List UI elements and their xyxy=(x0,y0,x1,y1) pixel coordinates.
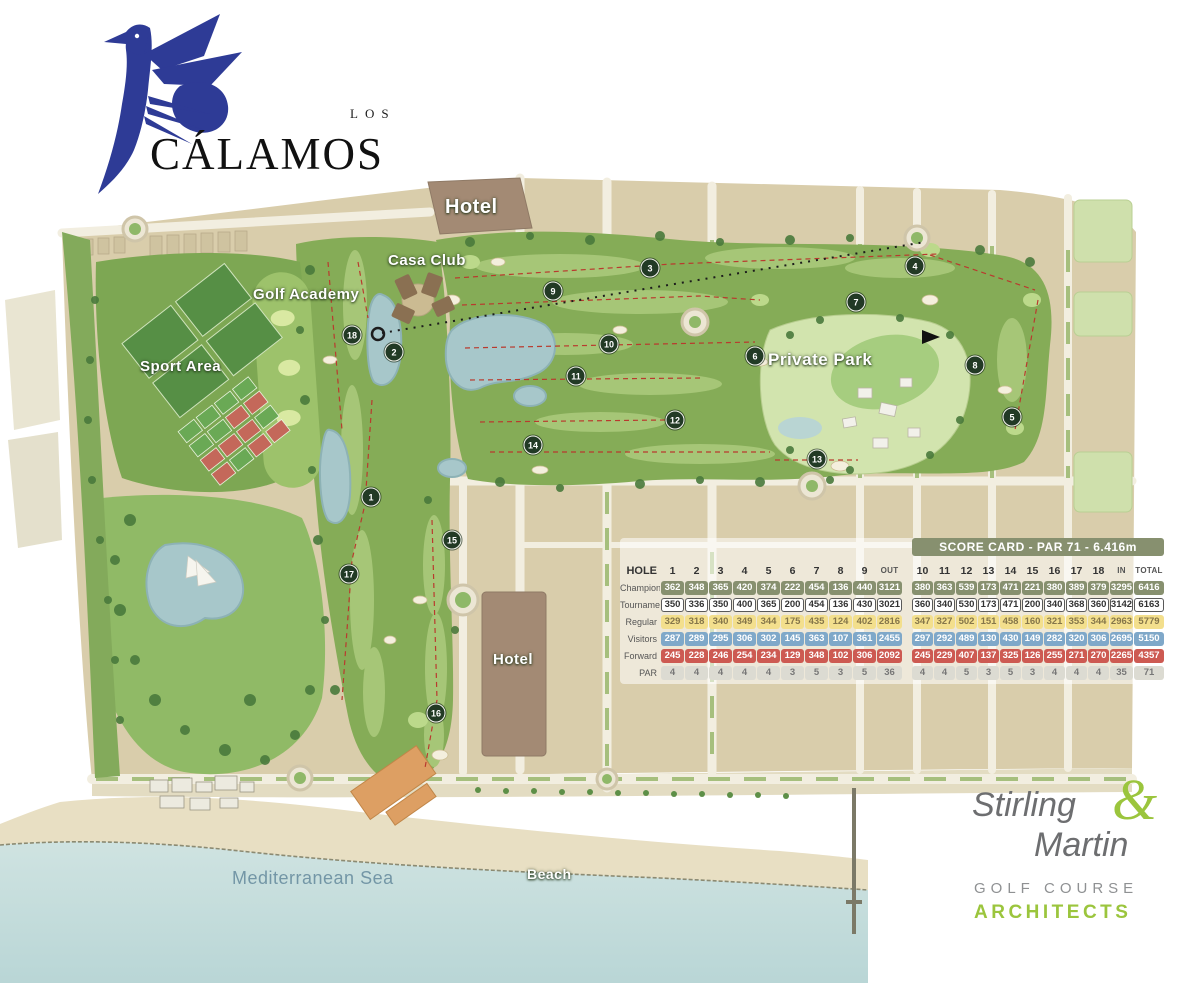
scorecard-cell: 149 xyxy=(1022,632,1043,646)
scorecard-cell: 360 xyxy=(1088,598,1109,612)
scorecard-cell: 124 xyxy=(829,615,852,629)
resort-logo: LOS CÁLAMOS xyxy=(88,6,418,191)
scorecard-cell: 539 xyxy=(956,581,977,595)
scorecard-hole-number: 8 xyxy=(829,564,852,578)
scorecard-cell: 245 xyxy=(661,649,684,663)
hole-marker-10: 10 xyxy=(600,335,619,354)
scorecard-hole-number: 12 xyxy=(956,564,977,578)
scorecard-cell: 306 xyxy=(853,649,876,663)
scorecard-cell: 407 xyxy=(956,649,977,663)
ampersand-glyph: & xyxy=(1112,766,1157,833)
scorecard-hole-number: 6 xyxy=(781,564,804,578)
scorecard-title: SCORE CARD - PAR 71 - 6.416m xyxy=(912,538,1164,556)
scorecard-cell xyxy=(903,581,911,595)
scorecard-hole-number: 4 xyxy=(733,564,756,578)
scorecard-cell: 471 xyxy=(1000,598,1021,612)
hole-marker-1: 1 xyxy=(362,488,381,507)
hole-marker-6: 6 xyxy=(746,347,765,366)
scorecard-total-value: 6416 xyxy=(1134,581,1164,595)
scorecard-in-value: 2963 xyxy=(1110,615,1133,629)
scorecard-row-label: Regular xyxy=(620,615,660,629)
scorecard-cell: 430 xyxy=(1000,632,1021,646)
scorecard-cell: 502 xyxy=(956,615,977,629)
scorecard-total-value: 4357 xyxy=(1134,649,1164,663)
scorecard-cell: 4 xyxy=(934,666,955,680)
architects-logo: Stirling & Martin GOLF COURSE ARCHITECTS xyxy=(972,778,1172,923)
masterplan: LOS CÁLAMOS Hotel Casa Club Golf Academy… xyxy=(0,0,1200,983)
scorecard-cell: 107 xyxy=(829,632,852,646)
scorecard-cell: 306 xyxy=(1088,632,1109,646)
scorecard-cell: 360 xyxy=(912,598,933,612)
scorecard-cell: 471 xyxy=(1000,581,1021,595)
scorecard-cell: 129 xyxy=(781,649,804,663)
scorecard-hole-number: 11 xyxy=(934,564,955,578)
scorecard-row-label: PAR xyxy=(620,666,660,680)
scorecard-cell: 350 xyxy=(709,598,732,612)
scorecard-cell: 454 xyxy=(805,598,828,612)
scorecard-cell xyxy=(903,615,911,629)
scorecard-cell: 130 xyxy=(978,632,999,646)
scorecard-out-value: 3121 xyxy=(877,581,902,595)
label-casa-club: Casa Club xyxy=(388,252,466,269)
scorecard-in-value: 35 xyxy=(1110,666,1133,680)
scorecard-in-value: 2695 xyxy=(1110,632,1133,646)
scorecard-cell: 348 xyxy=(805,649,828,663)
scorecard-cell: 234 xyxy=(757,649,780,663)
scorecard-cell: 353 xyxy=(1066,615,1087,629)
scorecard-cell: 160 xyxy=(1022,615,1043,629)
hole-marker-5: 5 xyxy=(1003,408,1022,427)
scorecard-cell: 175 xyxy=(781,615,804,629)
scorecard-cell: 340 xyxy=(1044,598,1065,612)
scorecard: SCORE CARD - PAR 71 - 6.416m HOLE1234567… xyxy=(620,538,1166,684)
scorecard-out-value: 36 xyxy=(877,666,902,680)
scorecard-cell: 246 xyxy=(709,649,732,663)
scorecard-cell: 363 xyxy=(805,632,828,646)
scorecard-cell: 222 xyxy=(781,581,804,595)
scorecard-cell: 318 xyxy=(685,615,708,629)
scorecard-cell: 454 xyxy=(805,581,828,595)
scorecard-cell: 321 xyxy=(1044,615,1065,629)
scorecard-cell: 379 xyxy=(1088,581,1109,595)
hole-marker-3: 3 xyxy=(641,259,660,278)
scorecard-in-value: 3142 xyxy=(1110,598,1133,612)
label-private-park: Private Park xyxy=(768,350,872,370)
label-sea: Mediterranean Sea xyxy=(232,868,394,889)
architect-name-2: Martin xyxy=(1034,826,1128,865)
scorecard-hole-number: 17 xyxy=(1066,564,1087,578)
scorecard-cell: 4 xyxy=(661,666,684,680)
scorecard-row-label: Forward xyxy=(620,649,660,663)
scorecard-row-label: Visitors xyxy=(620,632,660,646)
hole-marker-11: 11 xyxy=(567,367,586,386)
scorecard-total-value: 5150 xyxy=(1134,632,1164,646)
scorecard-cell: 329 xyxy=(661,615,684,629)
scorecard-cell: 362 xyxy=(661,581,684,595)
scorecard-hole-number: 7 xyxy=(805,564,828,578)
scorecard-hole-number: 16 xyxy=(1044,564,1065,578)
scorecard-cell: 400 xyxy=(733,598,756,612)
scorecard-cell: 336 xyxy=(685,598,708,612)
scorecard-cell: 4 xyxy=(709,666,732,680)
scorecard-cell: 151 xyxy=(978,615,999,629)
scorecard-cell: 347 xyxy=(912,615,933,629)
scorecard-cell: 374 xyxy=(757,581,780,595)
scorecard-out-header: OUT xyxy=(877,564,902,578)
hole-marker-9: 9 xyxy=(544,282,563,301)
scorecard-cell: 126 xyxy=(1022,649,1043,663)
scorecard-cell: 136 xyxy=(829,598,852,612)
scorecard-cell: 254 xyxy=(733,649,756,663)
scorecard-cell: 221 xyxy=(1022,581,1043,595)
scorecard-cell: 4 xyxy=(757,666,780,680)
scorecard-cell: 344 xyxy=(1088,615,1109,629)
scorecard-cell xyxy=(903,649,911,663)
scorecard-cell: 327 xyxy=(934,615,955,629)
scorecard-cell: 435 xyxy=(805,615,828,629)
scorecard-cell: 430 xyxy=(853,598,876,612)
scorecard-cell: 361 xyxy=(853,632,876,646)
hole-marker-16: 16 xyxy=(427,704,446,723)
scorecard-cell xyxy=(903,632,911,646)
scorecard-hole-number: 14 xyxy=(1000,564,1021,578)
scorecard-cell: 5 xyxy=(853,666,876,680)
scorecard-hole-number: 5 xyxy=(757,564,780,578)
scorecard-cell xyxy=(903,598,911,612)
scorecard-cell: 348 xyxy=(685,581,708,595)
scorecard-row-label: Champions xyxy=(620,581,660,595)
scorecard-cell: 4 xyxy=(685,666,708,680)
scorecard-cell: 380 xyxy=(912,581,933,595)
scorecard-cell: 5 xyxy=(805,666,828,680)
scorecard-cell: 4 xyxy=(1066,666,1087,680)
scorecard-cell: 344 xyxy=(757,615,780,629)
scorecard-hole-number: 2 xyxy=(685,564,708,578)
scorecard-cell: 302 xyxy=(757,632,780,646)
architect-name-1: Stirling xyxy=(972,786,1076,825)
scorecard-cell: 270 xyxy=(1088,649,1109,663)
scorecard-cell: 458 xyxy=(1000,615,1021,629)
scorecard-cell: 5 xyxy=(956,666,977,680)
scorecard-cell: 5 xyxy=(1000,666,1021,680)
scorecard-cell: 289 xyxy=(685,632,708,646)
scorecard-cell: 325 xyxy=(1000,649,1021,663)
label-golf-academy: Golf Academy xyxy=(253,286,359,303)
scorecard-out-value: 2816 xyxy=(877,615,902,629)
scorecard-cell xyxy=(903,666,911,680)
scorecard-cell: 340 xyxy=(709,615,732,629)
scorecard-cell: 245 xyxy=(912,649,933,663)
hole-marker-17: 17 xyxy=(340,565,359,584)
label-hotel-north: Hotel xyxy=(445,196,498,219)
scorecard-cell: 271 xyxy=(1066,649,1087,663)
scorecard-cell: 297 xyxy=(912,632,933,646)
hole-marker-15: 15 xyxy=(443,531,462,550)
scorecard-in-value: 3295 xyxy=(1110,581,1133,595)
scorecard-cell: 349 xyxy=(733,615,756,629)
label-beach: Beach xyxy=(527,866,572,882)
scorecard-cell: 489 xyxy=(956,632,977,646)
logo-pretitle: LOS xyxy=(350,106,396,122)
scorecard-cell: 173 xyxy=(978,581,999,595)
scorecard-out-value: 3021 xyxy=(877,598,902,612)
scorecard-out-value: 2092 xyxy=(877,649,902,663)
scorecard-cell: 440 xyxy=(853,581,876,595)
scorecard-cell: 402 xyxy=(853,615,876,629)
scorecard-table: HOLE123456789OUT101112131415161718INTOTA… xyxy=(620,564,1166,680)
label-hotel-beach: Hotel xyxy=(493,651,533,668)
scorecard-cell: 3 xyxy=(978,666,999,680)
scorecard-cell: 365 xyxy=(709,581,732,595)
scorecard-hole-number: 1 xyxy=(661,564,684,578)
scorecard-cell: 255 xyxy=(1044,649,1065,663)
hole-marker-13: 13 xyxy=(808,450,827,469)
scorecard-hole-number: 15 xyxy=(1022,564,1043,578)
scorecard-cell: 136 xyxy=(829,581,852,595)
scorecard-cell: 200 xyxy=(1022,598,1043,612)
scorecard-cell: 368 xyxy=(1066,598,1087,612)
hole-marker-8: 8 xyxy=(966,356,985,375)
logo-title: CÁLAMOS xyxy=(150,128,384,180)
hole-marker-4: 4 xyxy=(906,257,925,276)
hole-marker-18: 18 xyxy=(343,326,362,345)
hole-marker-7: 7 xyxy=(847,293,866,312)
scorecard-hole-number: 3 xyxy=(709,564,732,578)
scorecard-in-header: IN xyxy=(1110,564,1133,578)
scorecard-cell: 3 xyxy=(781,666,804,680)
architect-subtitle-2: ARCHITECTS xyxy=(974,902,1131,924)
scorecard-cell: 420 xyxy=(733,581,756,595)
scorecard-cell: 102 xyxy=(829,649,852,663)
architect-subtitle-1: GOLF COURSE xyxy=(974,880,1138,897)
hole-marker-14: 14 xyxy=(524,436,543,455)
scorecard-cell: 4 xyxy=(912,666,933,680)
scorecard-total-header: TOTAL xyxy=(1134,564,1164,578)
scorecard-cell: 530 xyxy=(956,598,977,612)
scorecard-cell xyxy=(903,564,911,578)
scorecard-hole-number: 18 xyxy=(1088,564,1109,578)
scorecard-cell: 320 xyxy=(1066,632,1087,646)
scorecard-cell: 282 xyxy=(1044,632,1065,646)
scorecard-cell: 365 xyxy=(757,598,780,612)
scorecard-cell: 200 xyxy=(781,598,804,612)
scorecard-hole-header: HOLE xyxy=(620,564,660,578)
hole-marker-12: 12 xyxy=(666,411,685,430)
scorecard-total-value: 5779 xyxy=(1134,615,1164,629)
scorecard-cell: 389 xyxy=(1066,581,1087,595)
scorecard-cell: 137 xyxy=(978,649,999,663)
scorecard-cell: 145 xyxy=(781,632,804,646)
scorecard-out-value: 2455 xyxy=(877,632,902,646)
scorecard-cell: 173 xyxy=(978,598,999,612)
scorecard-cell: 3 xyxy=(829,666,852,680)
scorecard-total-value: 71 xyxy=(1134,666,1164,680)
scorecard-hole-number: 9 xyxy=(853,564,876,578)
scorecard-cell: 380 xyxy=(1044,581,1065,595)
label-sport-area: Sport Area xyxy=(140,358,221,375)
scorecard-cell: 340 xyxy=(934,598,955,612)
scorecard-cell: 363 xyxy=(934,581,955,595)
scorecard-hole-number: 10 xyxy=(912,564,933,578)
scorecard-cell: 287 xyxy=(661,632,684,646)
scorecard-cell: 3 xyxy=(1022,666,1043,680)
scorecard-total-value: 6163 xyxy=(1134,598,1164,612)
scorecard-row-label: Tournament xyxy=(620,598,660,612)
scorecard-cell: 4 xyxy=(1044,666,1065,680)
scorecard-cell: 4 xyxy=(1088,666,1109,680)
scorecard-hole-number: 13 xyxy=(978,564,999,578)
scorecard-cell: 292 xyxy=(934,632,955,646)
hole-marker-2: 2 xyxy=(385,343,404,362)
scorecard-cell: 306 xyxy=(733,632,756,646)
scorecard-cell: 295 xyxy=(709,632,732,646)
scorecard-cell: 229 xyxy=(934,649,955,663)
scorecard-cell: 350 xyxy=(661,598,684,612)
scorecard-cell: 228 xyxy=(685,649,708,663)
scorecard-cell: 4 xyxy=(733,666,756,680)
scorecard-in-value: 2265 xyxy=(1110,649,1133,663)
